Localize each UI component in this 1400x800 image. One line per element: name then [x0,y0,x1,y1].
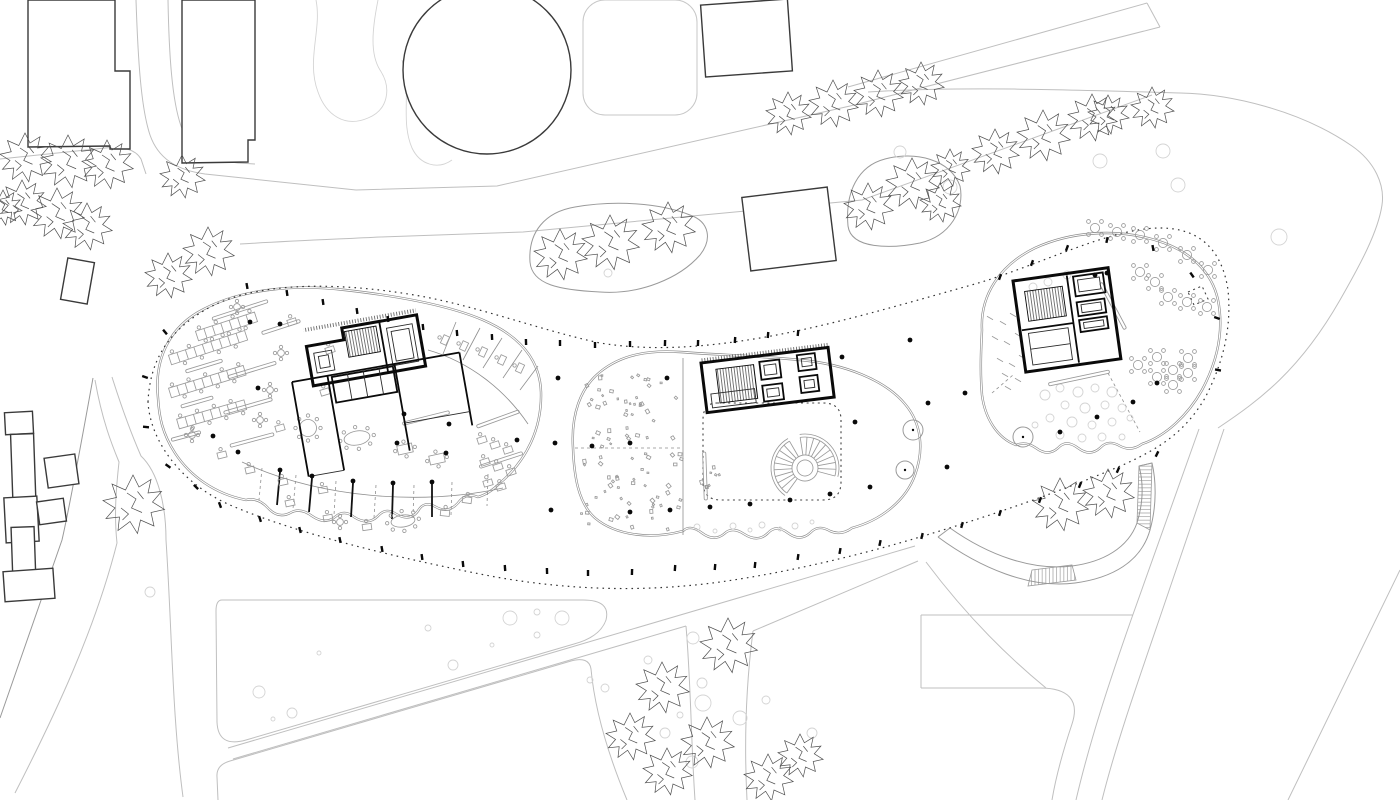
deciduous-tree [183,227,234,276]
bollard [1078,482,1082,488]
faint-tree-circle [733,711,747,725]
deciduous-tree [636,662,689,713]
bollard [525,339,528,345]
plaza-dot [1095,415,1100,420]
chair [1192,247,1196,251]
faint-tree-circle [697,678,707,688]
plaza-dot [748,502,753,507]
plaza-dot [395,441,400,446]
table-top [337,519,344,526]
faint-tree-circle [287,708,297,718]
bollard [559,340,561,346]
circular-building [403,0,571,154]
context-building [44,454,79,488]
path-L-bottom [921,688,1074,800]
plaza-dot [1058,430,1063,435]
deciduous-tree [809,80,858,127]
bollard [258,516,262,522]
deciduous-tree [643,748,692,795]
crescent-inner [950,466,1142,567]
planting-bed-east [848,156,961,246]
path-diagonal-upper [228,546,915,748]
bollard [587,570,589,576]
bollard [1155,451,1160,457]
plaza-dot [556,376,561,381]
chair [1145,227,1149,231]
plaza-dot [1155,381,1160,386]
faint-tree-circle [677,712,683,718]
plaza-dot [945,465,950,470]
deciduous-tree [1083,469,1134,518]
road-north-edge [848,3,1147,87]
faint-tree-circle [490,643,494,647]
deciduous-tree [700,618,757,673]
boundary-southeast [1288,570,1400,800]
context-building [37,498,67,525]
plaza-dot [278,322,283,327]
plaza-dot [908,338,913,343]
context-building [701,0,793,77]
deciduous-tree [899,62,944,105]
chair [417,517,421,521]
plaza-dot [1131,400,1136,405]
bollard [594,342,596,348]
faint-tree-circle [644,656,652,664]
plaza-dot [391,481,396,486]
bollard [631,569,634,575]
chair [1213,262,1217,266]
bollard [380,546,383,552]
plaza-dot [788,498,793,503]
chair [389,514,393,518]
deciduous-tree [534,229,587,280]
faint-tree-circle [253,686,265,698]
building-northwest-2 [182,0,255,163]
bollard [491,334,494,340]
faint-tree-circle [145,587,155,597]
faint-tree-circle [534,609,540,615]
bollard [245,283,248,289]
deciduous-tree [972,129,1019,174]
chair [1122,224,1126,228]
plaza-dot [310,474,315,479]
crescent-outer [938,463,1155,584]
plaza-dot [665,376,670,381]
deciduous-tree [1017,110,1070,161]
chair [344,520,347,523]
deciduous-tree [1131,87,1174,128]
tree-trunk [912,429,914,431]
deciduous-tree [642,202,695,253]
deciduous-tree [31,188,84,239]
deciduous-tree [681,717,734,768]
deciduous-tree [931,149,970,186]
plaza-dot [236,450,241,455]
bollard [461,561,464,567]
context-building [3,568,55,601]
bollard [734,337,737,343]
bollard [504,565,507,571]
deciduous-tree [1068,94,1117,141]
plaza-dot [840,355,845,360]
deciduous-tree [844,183,893,230]
bollard [218,502,222,508]
plaza-dot [828,492,833,497]
crescent-stairs-sw [1028,565,1076,586]
island-east [981,233,1220,452]
terrace-wall-4 [392,485,393,519]
lawn-south [217,660,627,800]
plaza-dot [515,438,520,443]
plaza-dot [628,510,633,515]
crescent-stairs-ne [1137,463,1152,530]
faint-tree-circle [1271,229,1287,245]
plaza-dot [708,505,713,510]
chair [1100,220,1104,224]
chair [391,528,395,532]
bollard [338,537,342,543]
context-building [61,258,95,304]
faint-tree-circle [1156,144,1170,158]
bollard [697,340,700,346]
deciduous-tree [766,92,811,135]
faint-tree-circle [503,611,517,625]
deciduous-tree [145,253,192,298]
chair [1213,275,1217,279]
plaza-dot [430,480,435,485]
deciduous-tree [854,70,903,117]
faint-tree-circle [604,269,612,277]
deciduous-tree [582,215,639,270]
bollard [664,340,667,346]
path-west-right-edge [166,540,183,797]
faint-tree-circle [686,756,698,768]
plaza-dot [926,401,931,406]
chair [1087,220,1091,224]
plaza-dot [444,451,449,456]
plaza-dot [1105,271,1110,276]
path-stem-left [686,626,695,800]
context-building [4,411,33,434]
vegetation-squiggle-1 [313,0,386,121]
plaza-dot [628,441,633,446]
building-northwest-1 [28,0,130,149]
bollard [165,463,171,468]
plaza-dot [668,508,673,513]
deciduous-tree [744,754,793,800]
path-diagonal-lower-b [753,561,918,631]
bollard [753,562,756,568]
bollard [878,540,882,546]
faint-tree-circle [601,684,609,692]
chair [332,520,335,523]
faint-tree-circle [695,695,711,711]
tree-trunk [1022,436,1024,438]
plaza-dot [963,391,968,396]
bollard [838,548,841,554]
bollard [796,330,799,336]
faint-tree-circle [687,632,699,644]
plaza-dot [278,468,283,473]
deciduous-tree [778,734,823,777]
tree-trunk [904,469,906,471]
bollard [714,564,717,570]
faint-tree-circle [317,651,321,655]
bollard [162,329,168,335]
deciduous-tree [63,203,112,250]
faint-tree-circle [555,611,569,625]
deciduous-tree [1088,95,1129,134]
chair [1109,224,1113,228]
plaza-dot [868,485,873,490]
path-diagonal-lower-a [233,626,686,759]
faint-tree-circle [534,632,540,638]
bollard [674,565,677,571]
chair [1168,235,1172,239]
chair [1155,235,1159,239]
bollard [1215,368,1221,371]
architectural-site-plan-drawing: Architectural site plan — ground floor l… [0,0,1400,800]
plaza-dot [256,386,261,391]
faint-tree-circle [807,728,817,738]
plaza-dot [248,320,253,325]
chair [1200,262,1204,266]
street-central-lower [240,95,1152,244]
chair [1132,227,1136,231]
plaza-dot [549,508,554,513]
bollard [546,568,549,574]
plaza-dot [1093,273,1098,278]
faint-tree-circle [271,717,275,721]
faint-tree-circle [660,728,670,738]
road-chevron [1147,3,1160,27]
plaza-dot [351,479,356,484]
desk-surface [362,523,372,530]
faint-tree-circle [425,625,431,631]
chair [385,521,389,525]
bollard [998,510,1002,516]
bollard [142,375,148,379]
rounded-block-outline [583,0,697,115]
context-building [742,187,836,271]
gravel-pebble [581,513,583,515]
faint-tree-circle [762,696,770,704]
bollard [767,332,770,338]
plaza-dot [853,420,858,425]
plaza-dot [211,434,216,439]
deciduous-tree [606,713,655,760]
chair [402,529,406,533]
deciduous-tree [920,183,961,222]
chair [413,525,417,529]
plaza-dot [402,412,407,417]
table-top [1090,223,1099,232]
plaza-dot [553,441,558,446]
bollard [920,533,924,539]
faint-tree-circle [1093,154,1107,168]
plaza-dot [447,422,452,427]
plaza-dot [590,444,595,449]
deciduous-tree [103,475,165,534]
gravel-pebble [588,523,590,525]
bollard [629,341,631,347]
bollard [1116,467,1121,473]
chair [338,526,341,529]
bollard [796,554,799,560]
bollard [143,426,149,429]
bollard [420,554,423,560]
faint-tree-circle [448,660,458,670]
faint-tree-circle [1171,178,1185,192]
site-plan-canvas: Architectural site plan — ground floor l… [0,0,1400,800]
